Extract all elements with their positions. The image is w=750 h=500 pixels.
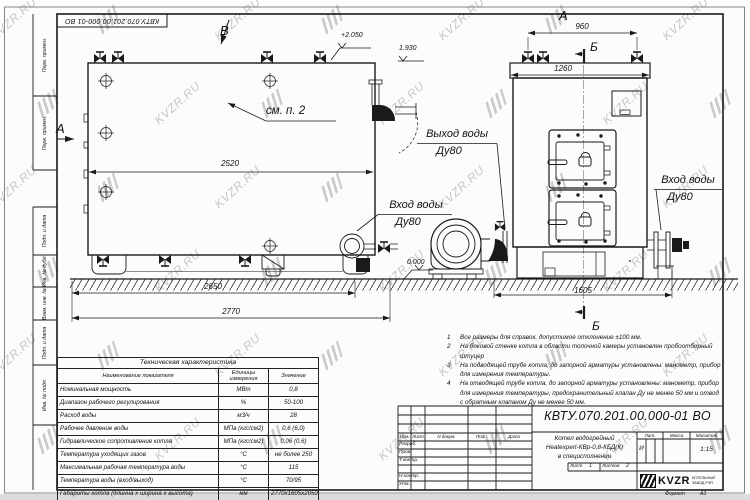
section-letter-b-top: Б: [590, 41, 598, 53]
engineering-drawing-sheet: KVZR.RUKVZR.RUKVZR.RUKVZR.RUKVZR.RUKVZR.…: [0, 0, 750, 500]
table-header-row: Наименование показателя Единицы измерени…: [58, 369, 319, 384]
callout-see-note: см. п. 2: [266, 106, 305, 118]
sheet-value: 1: [589, 464, 592, 470]
table-title: Техническая характеристика: [58, 358, 319, 369]
section-letter-b-bottom: Б: [592, 320, 600, 332]
lit-label: Лит.: [637, 434, 663, 439]
company-line2: ЗАВОД РЭП: [692, 481, 715, 485]
elevation-zero: 0.000: [407, 259, 425, 266]
tb-col-docnum: N докум.: [425, 435, 468, 440]
table-row: Расход водым3/ч28: [58, 410, 319, 423]
tb-col-data: Дата: [496, 435, 532, 440]
table-row: Температура уходящих газов°Сне более 250: [58, 449, 319, 462]
margin-cell-inv-podl: Инв. № подл.: [33, 365, 57, 425]
product-name-line1: Котел водогрейный: [533, 436, 636, 442]
table-row: Номинальная мощностьМВт0,8: [58, 384, 319, 397]
dim-front-valves: 960: [549, 23, 615, 31]
sheets-label: Листов: [602, 465, 619, 470]
scale-value: 1:15: [690, 447, 723, 454]
tb-row-tkontr: Т.контр.: [399, 459, 418, 464]
callout-front-outlet: Выход воды: [416, 129, 498, 140]
callout-front-inlet-dn: Ду80: [655, 192, 705, 203]
margin-cell-podp-data-1: Подп. и дата: [33, 207, 57, 255]
kvzr-logo-icon: [640, 474, 656, 488]
callout-front-inlet: Вход воды: [652, 175, 724, 186]
tb-col-list: Лист: [411, 435, 425, 440]
scale-label: Масштаб: [690, 434, 723, 439]
tb-col-podp: Подп.: [468, 435, 496, 440]
tb-row-razrab: Разраб.: [399, 443, 416, 448]
view-letter-a-front: А: [559, 9, 568, 22]
lit-value: И: [637, 446, 646, 453]
product-name-line3: в специсполнении: [533, 454, 636, 460]
tech-characteristics-table: Техническая характеристика Наименование …: [57, 357, 319, 500]
dim-front-base: 1605: [560, 287, 606, 295]
note-item: 4На отводящей трубе котла, до запорной а…: [445, 379, 723, 407]
product-name-line2: Heatexpert-КВр-0,8-КБД(К): [533, 445, 636, 451]
table-title-row: Техническая характеристика: [58, 358, 319, 369]
dim-side-base: 2650: [178, 283, 248, 291]
margin-cell-vzam-inv: Взам. инв. №: [33, 287, 57, 320]
margin-cell-podp-data-2: Подп. и дата: [33, 320, 57, 365]
table-row: Габариты котла (длинна х ширина х высота…: [58, 488, 319, 500]
margin-cell-perv-primen-2: Перв. примен.: [33, 96, 57, 170]
mass-label: Масса: [663, 434, 690, 439]
dim-front-top: 1260: [530, 65, 596, 73]
elevation-mid: 1.930: [399, 45, 417, 52]
callout-side-inlet: Вход воды: [377, 200, 455, 211]
callout-front-outlet-dn: Ду80: [424, 146, 474, 157]
notes-list: 1Все размеры для справок, допустимое отк…: [445, 333, 723, 407]
margin-cell-perv-primen-1: Перв. примен.: [33, 14, 57, 96]
format-label: Формат: [665, 492, 685, 497]
kvzr-logo-text: KVZR: [658, 475, 690, 487]
table-row: Диапазон рабочего регулирования%50-100: [58, 397, 319, 410]
table-row: Температура воды (вход/выход)°С70/95: [58, 475, 319, 488]
note-item: 3На подводящей трубе котла, до запорной …: [445, 361, 723, 380]
callout-side-inlet-dn: Ду80: [377, 217, 439, 228]
table-row: Максимальная рабочая температура воды°С1…: [58, 462, 319, 475]
tb-row-prov: Пров.: [399, 451, 412, 456]
sheet-label: Лист: [570, 465, 582, 470]
table-row: Гидравлическое сопротивление котлаМПа (к…: [58, 436, 319, 449]
title-block-doc-number: КВТУ.070.201.00.000-01 ВО: [532, 410, 723, 423]
note-item: 2На боковой стенке котла в области топоч…: [445, 342, 723, 361]
view-letter-b-top: В: [220, 24, 229, 37]
elevation-top: +2.050: [341, 32, 363, 39]
view-letter-a-side: А: [56, 122, 65, 135]
dim-side-overall: 2770: [196, 308, 266, 316]
note-item: 1Все размеры для справок, допустимое отк…: [445, 333, 723, 342]
company-logo: KVZR КОТЕЛЬНЫЙ ЗАВОД РЭП: [640, 472, 722, 489]
sheets-value: 2: [626, 464, 629, 470]
table-row: Рабочее давление водыМПа (кгс/см2)0,6 (6…: [58, 423, 319, 436]
corner-stamp-text: КВТУ.070.201.00.000-01 ВО: [65, 17, 159, 24]
tb-col-izm: Изм.: [398, 435, 411, 440]
dim-side-width: 2520: [195, 160, 265, 168]
tb-row-nkontr: Н.контр.: [399, 475, 419, 480]
tb-row-utv: Утв.: [399, 483, 410, 488]
format-value: А3: [700, 492, 706, 497]
corner-stamp: КВТУ.070.201.00.000-01 ВО: [57, 14, 167, 27]
margin-cell-inv-dubl: Инв. № дубл.: [33, 255, 57, 287]
